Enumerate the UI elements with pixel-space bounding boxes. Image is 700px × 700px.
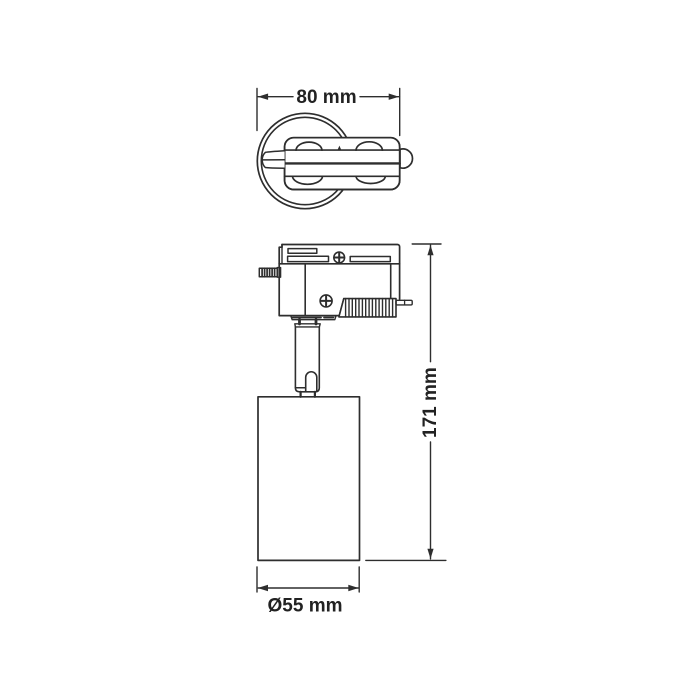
svg-text:Ø55 mm: Ø55 mm (268, 596, 343, 617)
svg-text:80 mm: 80 mm (296, 87, 356, 108)
svg-text:171 mm: 171 mm (420, 367, 441, 438)
